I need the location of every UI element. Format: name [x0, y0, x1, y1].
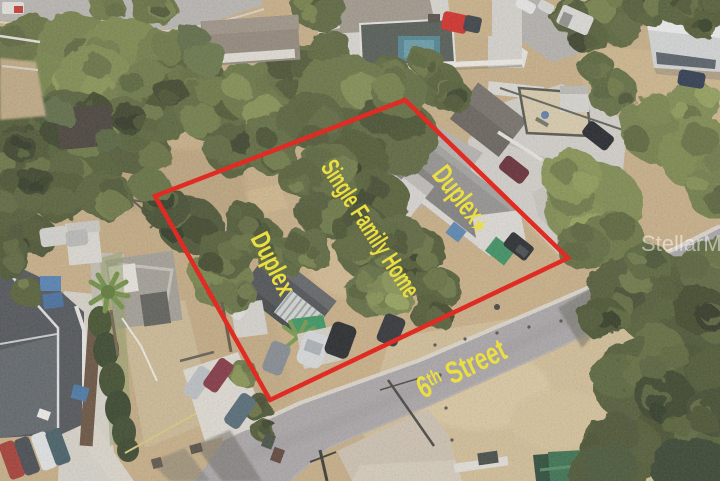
svg-text:StellarMLS: StellarMLS	[641, 231, 720, 256]
